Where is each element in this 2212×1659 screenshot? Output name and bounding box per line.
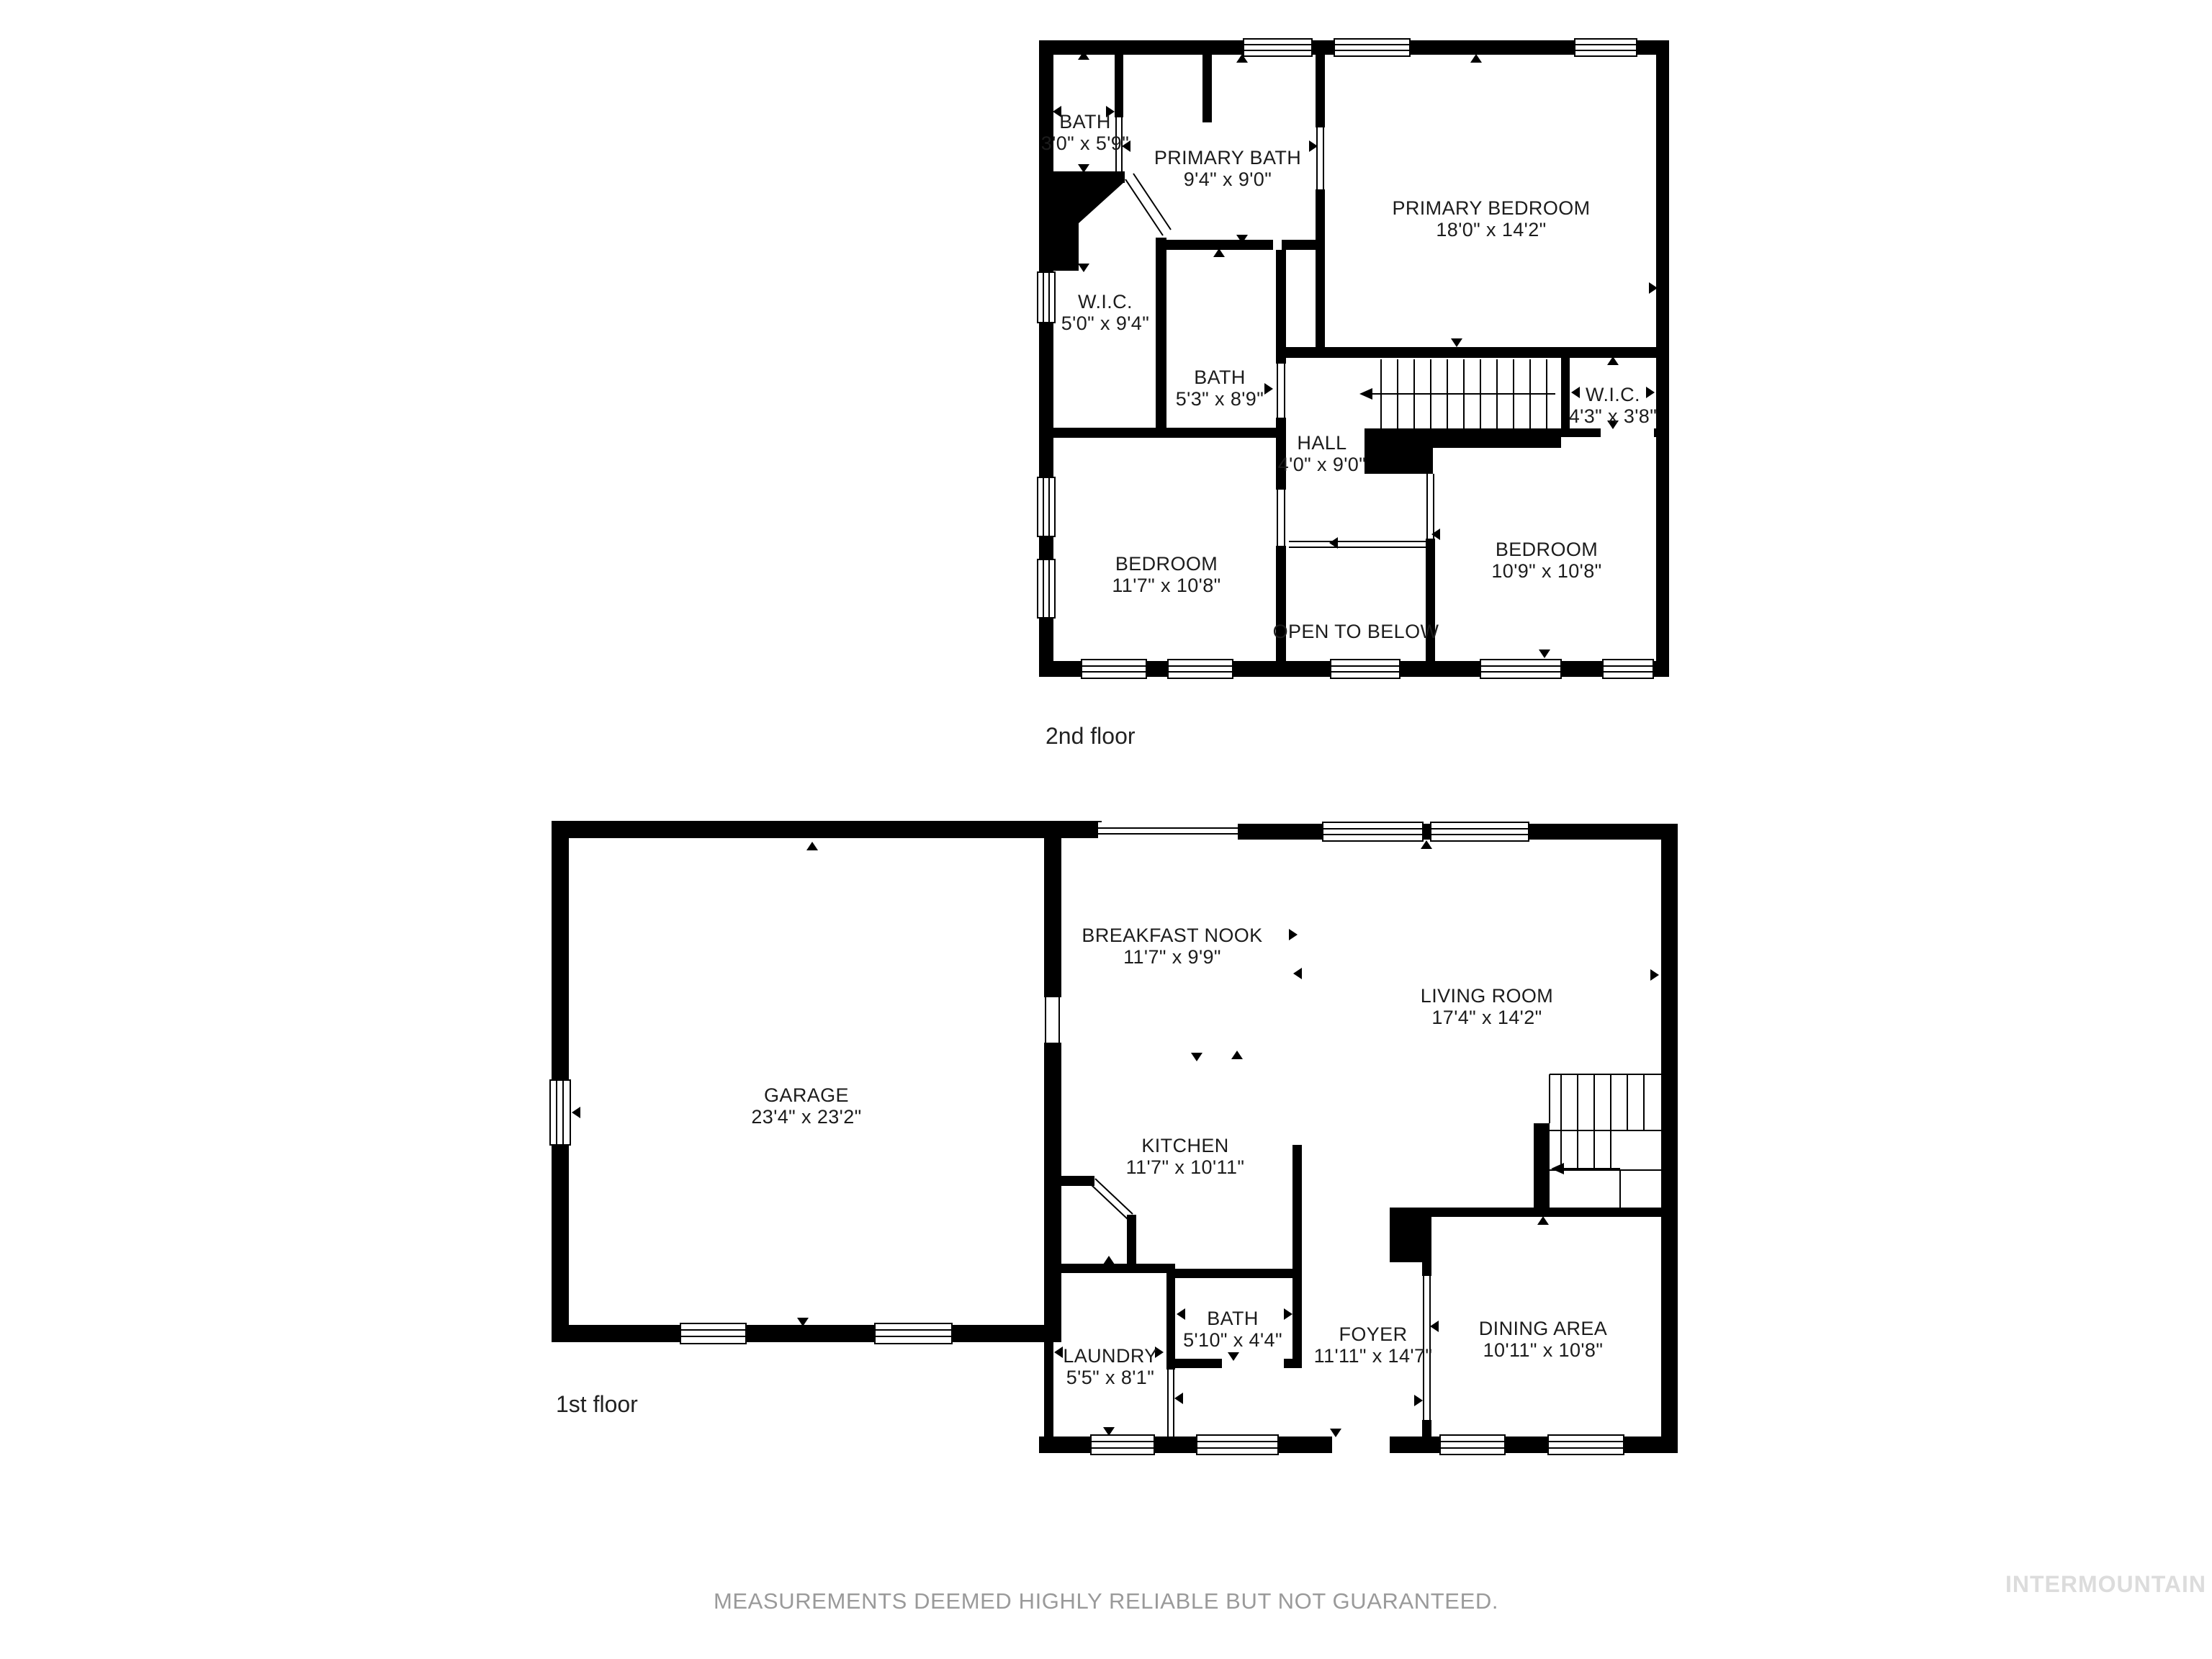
room-label-primary-bath: PRIMARY BATH xyxy=(1154,147,1301,168)
room-label-bedroom-left: BEDROOM xyxy=(1115,553,1218,575)
floor-caption-1st: 1st floor xyxy=(556,1391,638,1418)
floor-plan-drawing: BATH 3'0" x 5'9" PRIMARY BATH 9'4" x 9'0… xyxy=(0,0,2212,1659)
room-dims-bath-small: 3'0" x 5'9" xyxy=(1041,132,1129,154)
room-dims-primary-bedroom: 18'0" x 14'2" xyxy=(1436,219,1546,240)
room-dims-wic-right: 4'3" x 3'8" xyxy=(1569,405,1657,427)
room-label-dining-area: DINING AREA xyxy=(1479,1318,1607,1339)
room-label-wic-left: W.I.C. xyxy=(1078,291,1133,313)
room-label-bath-mid: BATH xyxy=(1194,367,1246,388)
room-label-foyer: FOYER xyxy=(1339,1323,1407,1345)
room-label-kitchen: KITCHEN xyxy=(1141,1135,1228,1156)
first-floor-room-labels: GARAGE 23'4" x 23'2" BREAKFAST NOOK 11'7… xyxy=(751,925,1607,1388)
room-dims-hall: 4'0" x 9'0" xyxy=(1278,454,1366,475)
room-label-garage: GARAGE xyxy=(764,1084,849,1106)
room-label-laundry: LAUNDRY xyxy=(1063,1345,1157,1367)
room-dims-primary-bath: 9'4" x 9'0" xyxy=(1184,168,1272,190)
room-label-breakfast-nook: BREAKFAST NOOK xyxy=(1082,925,1262,946)
room-label-wic-right: W.I.C. xyxy=(1586,384,1640,405)
second-floor-stairs xyxy=(1359,359,1555,428)
room-dims-bedroom-right: 10'9" x 10'8" xyxy=(1491,560,1601,582)
intermountain-watermark: INTERMOUNTAIN xyxy=(2005,1571,2206,1598)
room-dims-living-room: 17'4" x 14'2" xyxy=(1431,1007,1542,1028)
room-dims-laundry: 5'5" x 8'1" xyxy=(1066,1367,1154,1388)
floor-caption-2nd: 2nd floor xyxy=(1046,723,1136,750)
room-dims-bath: 5'10" x 4'4" xyxy=(1183,1329,1282,1351)
room-dims-bedroom-left: 11'7" x 10'8" xyxy=(1112,575,1220,596)
room-dims-dining-area: 10'11" x 10'8" xyxy=(1483,1339,1604,1361)
room-dims-garage: 23'4" x 23'2" xyxy=(751,1106,861,1128)
measurements-disclaimer: MEASUREMENTS DEEMED HIGHLY RELIABLE BUT … xyxy=(0,1588,2212,1614)
first-floor-door-frames xyxy=(1091,1179,1430,1437)
room-dims-kitchen: 11'7" x 10'11" xyxy=(1126,1156,1245,1178)
room-dims-bath-mid: 5'3" x 8'9" xyxy=(1176,388,1264,410)
first-floor-stairs xyxy=(1550,1074,1661,1208)
room-dims-foyer: 11'11" x 14'7" xyxy=(1314,1345,1433,1367)
second-floor-plan: BATH 3'0" x 5'9" PRIMARY BATH 9'4" x 9'0… xyxy=(1038,39,1669,678)
first-floor-plan: GARAGE 23'4" x 23'2" BREAKFAST NOOK 11'7… xyxy=(550,821,1678,1455)
room-label-open-to-below: OPEN TO BELOW xyxy=(1273,621,1439,642)
room-label-bath-small: BATH xyxy=(1059,111,1111,132)
room-dims-breakfast-nook: 11'7" x 9'9" xyxy=(1123,946,1221,968)
room-label-bedroom-right: BEDROOM xyxy=(1496,539,1598,560)
room-label-bath: BATH xyxy=(1207,1308,1259,1329)
room-label-primary-bedroom: PRIMARY BEDROOM xyxy=(1392,197,1590,219)
room-label-living-room: LIVING ROOM xyxy=(1421,985,1553,1007)
room-dims-wic-left: 5'0" x 9'4" xyxy=(1061,313,1149,334)
room-label-hall: HALL xyxy=(1297,432,1346,454)
floor-plan-page: BATH 3'0" x 5'9" PRIMARY BATH 9'4" x 9'0… xyxy=(0,0,2212,1659)
